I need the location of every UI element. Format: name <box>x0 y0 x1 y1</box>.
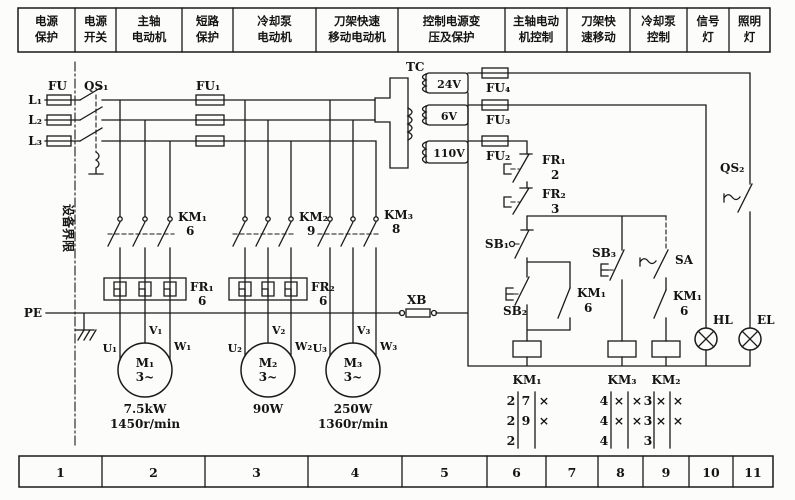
header-cell-label: 主轴 <box>138 14 161 28</box>
m1-speed: 1450r/min <box>110 417 180 431</box>
m3-speed: 1360r/min <box>318 417 388 431</box>
m2-phase: 3~ <box>259 370 277 384</box>
km3-contact-table: 4 × × 4 × × 4 <box>600 393 643 448</box>
table-cell: 3 <box>644 393 653 408</box>
table-cell: × <box>614 393 624 408</box>
el-lamp-icon <box>739 328 761 350</box>
sa-actuator-icon <box>640 258 656 266</box>
qs2-label: QS₂ <box>720 161 744 175</box>
tc-core-primary-icon <box>375 78 408 168</box>
m3-name: M₃ <box>344 356 363 370</box>
table-cell: 4 <box>600 393 609 408</box>
header-cell-label: 刀架快 <box>581 14 616 28</box>
header-cell-label: 刀架快速 <box>334 14 380 28</box>
column-number: 8 <box>616 465 625 480</box>
ctrl-fr1-label: FR₁ <box>542 153 566 167</box>
km3-sheet-ref: 8 <box>392 222 400 236</box>
fr1-nc-bracket-icon <box>504 164 511 174</box>
table-cell: 3 <box>644 413 653 428</box>
phase-l3-label: L₃ <box>28 134 42 148</box>
table-cell: 4 <box>600 433 609 448</box>
column-number: 5 <box>440 465 449 480</box>
km1-contact-table: 2 7 × 2 9 × 2 <box>507 393 550 448</box>
phase-l1-label: L₁ <box>28 93 42 107</box>
m2-u-terminal: U₂ <box>228 342 243 355</box>
header-cell-label: 控制 <box>647 30 670 44</box>
km2-coil-label: KM₂ <box>652 373 681 387</box>
header-cell-label: 移动电动机 <box>328 30 386 44</box>
m3-phase: 3~ <box>344 370 362 384</box>
km3-label: KM₃ <box>384 208 413 222</box>
table-cell: × <box>673 393 683 408</box>
m3-power: 250W <box>334 402 373 416</box>
linkage-dashes <box>96 95 666 294</box>
ctrl-fr2-ref: 3 <box>551 202 559 216</box>
sa-label: SA <box>675 253 694 267</box>
table-cell: 7 <box>522 393 531 408</box>
m2-name: M₂ <box>259 356 278 370</box>
column-number: 6 <box>512 465 521 480</box>
qs2-actuator-icon <box>724 194 740 202</box>
function-header-strip: 电源 保护 电源 开关 主轴 电动机 短路 保护 冷却泵 电动机 刀架快速 移动… <box>18 8 770 52</box>
km2-label: KM₂ <box>299 210 328 224</box>
table-cell: × <box>673 413 683 428</box>
table-cell: 2 <box>507 413 516 428</box>
header-cell-label: 电动机 <box>132 30 167 44</box>
table-cell: 3 <box>644 433 653 448</box>
table-cell: × <box>614 413 624 428</box>
table-cell: × <box>539 413 549 428</box>
m1-w-terminal: W₁ <box>173 340 191 353</box>
header-cell-label: 电动机 <box>257 30 292 44</box>
fu-label: FU <box>48 79 68 93</box>
sb2-label: SB₂ <box>503 304 527 318</box>
column-number: 10 <box>702 465 720 480</box>
km2-coil-icon <box>652 341 680 357</box>
fr1-label: FR₁ <box>190 280 214 294</box>
xb-label: XB <box>407 293 426 307</box>
table-cell: × <box>656 393 666 408</box>
m3-v-terminal: V₃ <box>356 324 371 337</box>
km1-label: KM₁ <box>178 210 207 224</box>
table-cell: × <box>539 393 549 408</box>
fu1-label: FU₁ <box>196 79 220 93</box>
header-cell-label: 信号 <box>697 14 720 28</box>
qs1-spring <box>89 152 103 174</box>
header-cell-label: 保护 <box>195 30 219 44</box>
m2-v-terminal: V₂ <box>271 324 286 337</box>
el-label: EL <box>757 313 775 327</box>
header-cell-label: 开关 <box>84 30 107 44</box>
km2-sheet-ref: 9 <box>307 224 315 238</box>
sb2-button-cap-icon <box>506 288 513 300</box>
km1-sheet-ref: 6 <box>186 224 194 238</box>
km1-aux2-label: KM₁ <box>673 289 702 303</box>
lathe-electrical-schematic: 电源 保护 电源 开关 主轴 电动机 短路 保护 冷却泵 电动机 刀架快速 移动… <box>0 0 795 500</box>
table-cell: 2 <box>507 393 516 408</box>
contact-terminals <box>118 217 378 221</box>
header-cell-label: 主轴电动 <box>513 14 559 28</box>
fu2-label: FU₂ <box>486 149 510 163</box>
table-cell: × <box>656 413 666 428</box>
m2-w-terminal: W₂ <box>294 340 312 353</box>
header-cell-label: 电源 <box>35 14 58 28</box>
header-cell-label: 机控制 <box>519 30 554 44</box>
table-cell: 2 <box>507 433 516 448</box>
m1-u-terminal: U₁ <box>103 342 118 355</box>
column-number: 4 <box>351 465 360 480</box>
km1-coil-icon <box>513 341 541 357</box>
m1-name: M₁ <box>136 356 155 370</box>
km1-aux-ref: 6 <box>584 301 592 315</box>
header-cell-label: 压及保护 <box>429 30 475 44</box>
column-number: 9 <box>662 465 671 480</box>
km1-aux-label: KM₁ <box>577 286 606 300</box>
pe-label: PE <box>24 306 42 320</box>
header-cell-label: 控制电源变 <box>423 14 481 28</box>
m3-u-terminal: U₃ <box>313 342 328 355</box>
fr1-sheet-ref: 6 <box>198 294 206 308</box>
header-cell-label: 冷却泵 <box>257 14 292 28</box>
sb1-label: SB₁ <box>485 237 509 251</box>
control-contact-blades <box>513 154 752 318</box>
xb-link-icon <box>400 309 437 317</box>
tc-label: TC <box>406 60 424 74</box>
header-cell-label: 短路 <box>196 14 219 28</box>
column-number: 7 <box>568 465 577 480</box>
power-circuit <box>45 62 752 447</box>
tc-6v-label: 6V <box>441 110 458 123</box>
column-number: 11 <box>744 465 761 480</box>
fr2-sheet-ref: 6 <box>319 294 327 308</box>
km3-coil-icon <box>608 341 636 357</box>
fu3-label: FU₃ <box>486 113 510 127</box>
table-cell: × <box>632 393 642 408</box>
m1-phase: 3~ <box>136 370 154 384</box>
km1-coil-label: KM₁ <box>513 373 542 387</box>
header-cell-label: 灯 <box>702 30 714 44</box>
tc-110v-label: 110V <box>433 147 465 160</box>
fr2-nc-bracket-icon <box>504 197 511 207</box>
header-cell-label: 速移动 <box>581 30 616 44</box>
header-cell-label: 电源 <box>84 14 107 28</box>
m2-power: 90W <box>253 402 284 416</box>
column-number: 1 <box>56 465 65 480</box>
fr2-label: FR₂ <box>311 280 335 294</box>
qs1-blades <box>80 87 102 141</box>
phase-l2-label: L₂ <box>28 113 42 127</box>
sb1-plunger-icon <box>510 242 515 247</box>
equipment-boundary-label: 设备界限 <box>61 204 76 252</box>
m3-w-terminal: W₃ <box>379 340 397 353</box>
tc-24v-label: 24V <box>437 78 461 91</box>
column-number: 2 <box>149 465 158 480</box>
km2-contact-table: 3 × × 3 × × 3 <box>644 393 684 448</box>
m1-v-terminal: V₁ <box>148 324 163 337</box>
qs1-label: QS₁ <box>84 79 108 93</box>
hl-lamp-icon <box>695 328 717 350</box>
header-cell-label: 冷却泵 <box>641 14 676 28</box>
hl-label: HL <box>713 313 733 327</box>
km3-coil-label: KM₃ <box>608 373 637 387</box>
column-number: 3 <box>252 465 261 480</box>
header-cell-label: 照明 <box>738 14 761 28</box>
table-cell: × <box>632 413 642 428</box>
sb3-label: SB₃ <box>592 246 616 260</box>
table-cell: 9 <box>522 413 531 428</box>
table-cell: 4 <box>600 413 609 428</box>
header-cell-label: 灯 <box>744 30 756 44</box>
ground-symbol-icon <box>76 330 96 340</box>
labels: L₁ L₂ L₃ FU QS₁ FU₁ 设备界限 KM₁ 6 KM₂ 9 KM₃… <box>24 60 775 448</box>
m1-power: 7.5kW <box>124 402 167 416</box>
header-cell-label: 保护 <box>34 30 58 44</box>
column-number-strip: 1 2 3 4 5 6 7 8 9 10 11 <box>19 456 773 487</box>
km1-aux2-ref: 6 <box>680 304 688 318</box>
ctrl-fr1-ref: 2 <box>551 168 559 182</box>
ctrl-fr2-label: FR₂ <box>542 187 566 201</box>
sb3-button-cap-icon <box>601 264 608 276</box>
schematic-page: 电源 保护 电源 开关 主轴 电动机 短路 保护 冷却泵 电动机 刀架快速 移动… <box>0 0 795 500</box>
fu4-label: FU₄ <box>486 81 510 95</box>
